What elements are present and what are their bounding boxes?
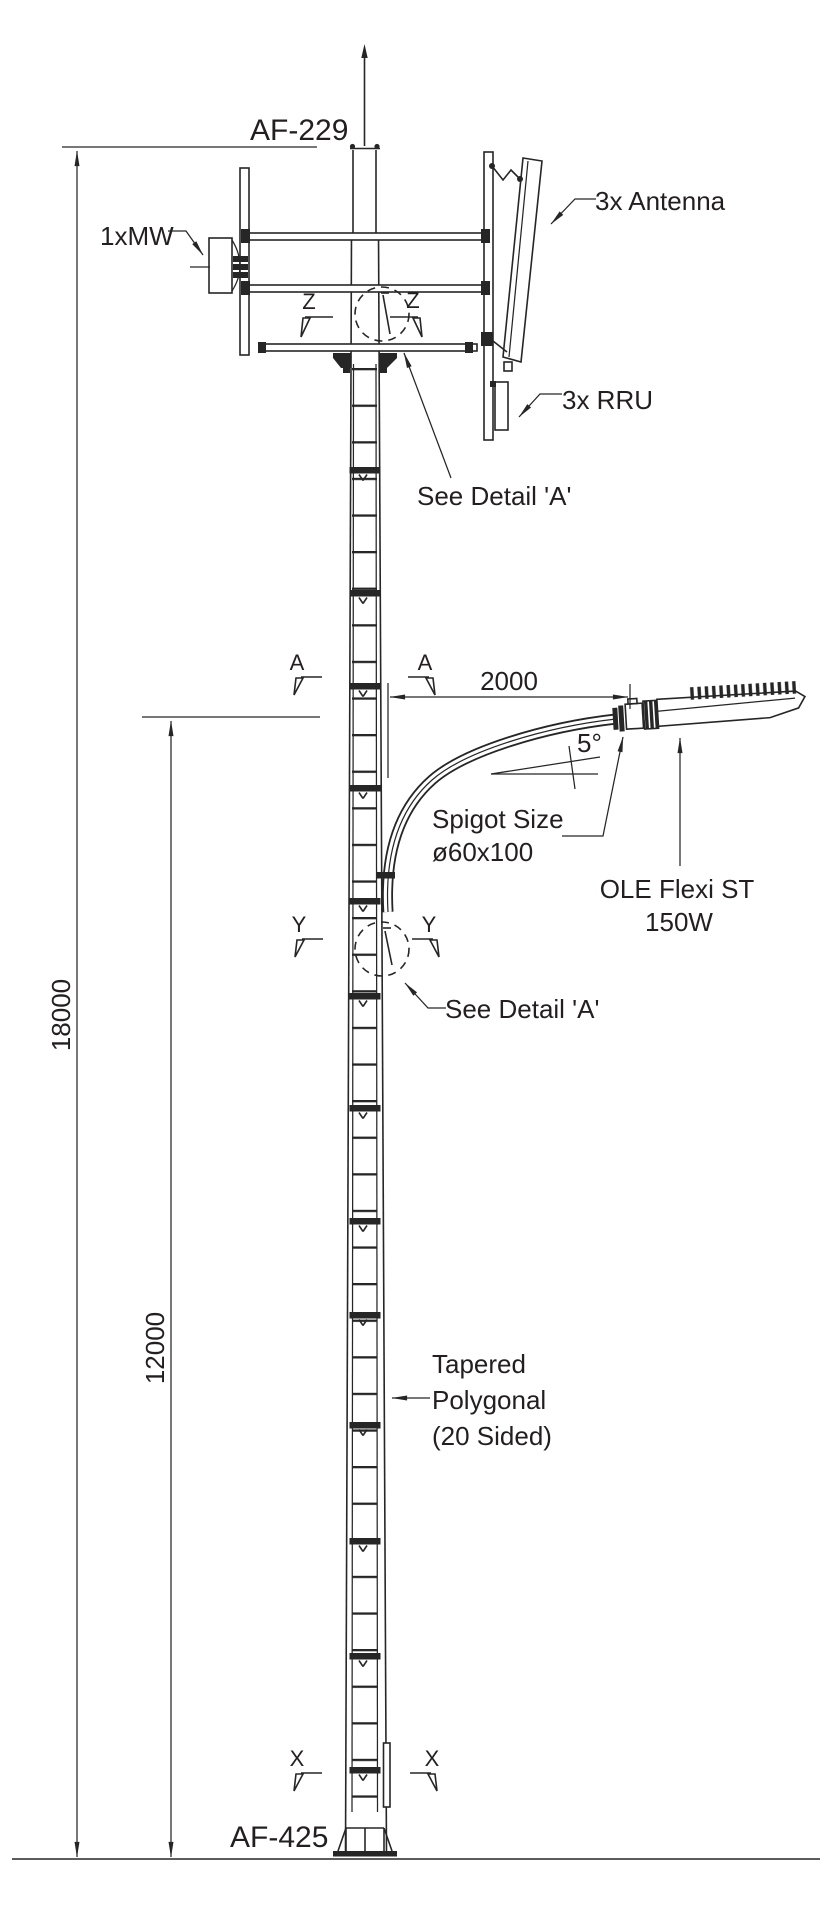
label-mw: 1xMW <box>100 221 203 255</box>
section-marker-x-right: X <box>410 1746 440 1791</box>
spigot-ring <box>618 705 625 731</box>
drawing-sheet: 18000 12000 2000 5° Z Z A A Y <box>0 0 831 1926</box>
svg-text:AF-425: AF-425 <box>230 1821 328 1854</box>
svg-text:A: A <box>290 650 305 675</box>
svg-text:3x Antenna: 3x Antenna <box>595 186 726 216</box>
svg-text:Tapered: Tapered <box>432 1349 526 1379</box>
svg-text:AF-229: AF-229 <box>250 114 348 147</box>
svg-text:1xMW: 1xMW <box>100 221 174 251</box>
label-rru: 3x RRU <box>519 385 653 417</box>
label-antenna: 3x Antenna <box>551 186 726 224</box>
dim-overall-height: 18000 <box>46 979 76 1051</box>
label-ole: OLE Flexi ST 150W <box>600 738 755 937</box>
headframe-rail-top <box>249 233 484 240</box>
label-tapered: Tapered Polygonal (20 Sided) <box>392 1349 552 1451</box>
svg-text:Z: Z <box>302 289 315 314</box>
svg-text:Spigot Size: Spigot Size <box>432 804 564 834</box>
climbing-ladder <box>352 364 378 1812</box>
dimension-12000: 12000 <box>140 717 320 1857</box>
headframe-right-arm <box>484 152 493 440</box>
svg-text:X: X <box>290 1746 305 1771</box>
pole-base <box>333 1828 397 1857</box>
label-af425: AF-425 <box>230 1821 328 1854</box>
section-marker-z-left: Z <box>301 289 333 337</box>
svg-text:Y: Y <box>292 912 307 937</box>
svg-text:Y: Y <box>422 912 437 937</box>
svg-text:150W: 150W <box>645 907 713 937</box>
access-door <box>384 1743 391 1807</box>
spigot-ring <box>612 708 618 730</box>
svg-text:3x RRU: 3x RRU <box>562 385 653 415</box>
dim-luminaire-height: 12000 <box>140 1312 170 1384</box>
headframe-rail-middle <box>249 285 484 292</box>
svg-text:Z: Z <box>406 288 419 313</box>
svg-text:A: A <box>418 650 433 675</box>
dim-arm-length: 2000 <box>480 666 538 696</box>
section-marker-x-left: X <box>290 1746 322 1791</box>
section-marker-z-right: Z <box>390 288 422 337</box>
headframe-rail-bottom <box>262 344 477 351</box>
section-marker-a-left: A <box>290 650 322 695</box>
detail-a-callout-top <box>355 287 409 341</box>
svg-text:See Detail 'A': See Detail 'A' <box>417 481 571 511</box>
section-marker-y-right: Y <box>412 912 439 957</box>
section-marker-a-right: A <box>408 650 435 695</box>
svg-text:See Detail 'A': See Detail 'A' <box>445 994 599 1024</box>
luminaire <box>611 681 806 732</box>
section-marker-y-left: Y <box>292 912 323 957</box>
svg-text:OLE Flexi ST: OLE Flexi ST <box>600 874 755 904</box>
svg-text:ø60x100: ø60x100 <box>432 837 533 867</box>
angle-label: 5° <box>577 728 602 758</box>
finial-spike <box>350 44 380 149</box>
label-see-detail-mid: See Detail 'A' <box>405 983 599 1024</box>
dimension-18000: 18000 <box>46 147 317 1857</box>
svg-text:(20 Sided): (20 Sided) <box>432 1421 552 1451</box>
svg-text:Polygonal: Polygonal <box>432 1385 546 1415</box>
pole-elevation-drawing: 18000 12000 2000 5° Z Z A A Y <box>0 0 831 1926</box>
label-af229: AF-229 <box>250 114 348 147</box>
svg-text:X: X <box>425 1746 440 1771</box>
